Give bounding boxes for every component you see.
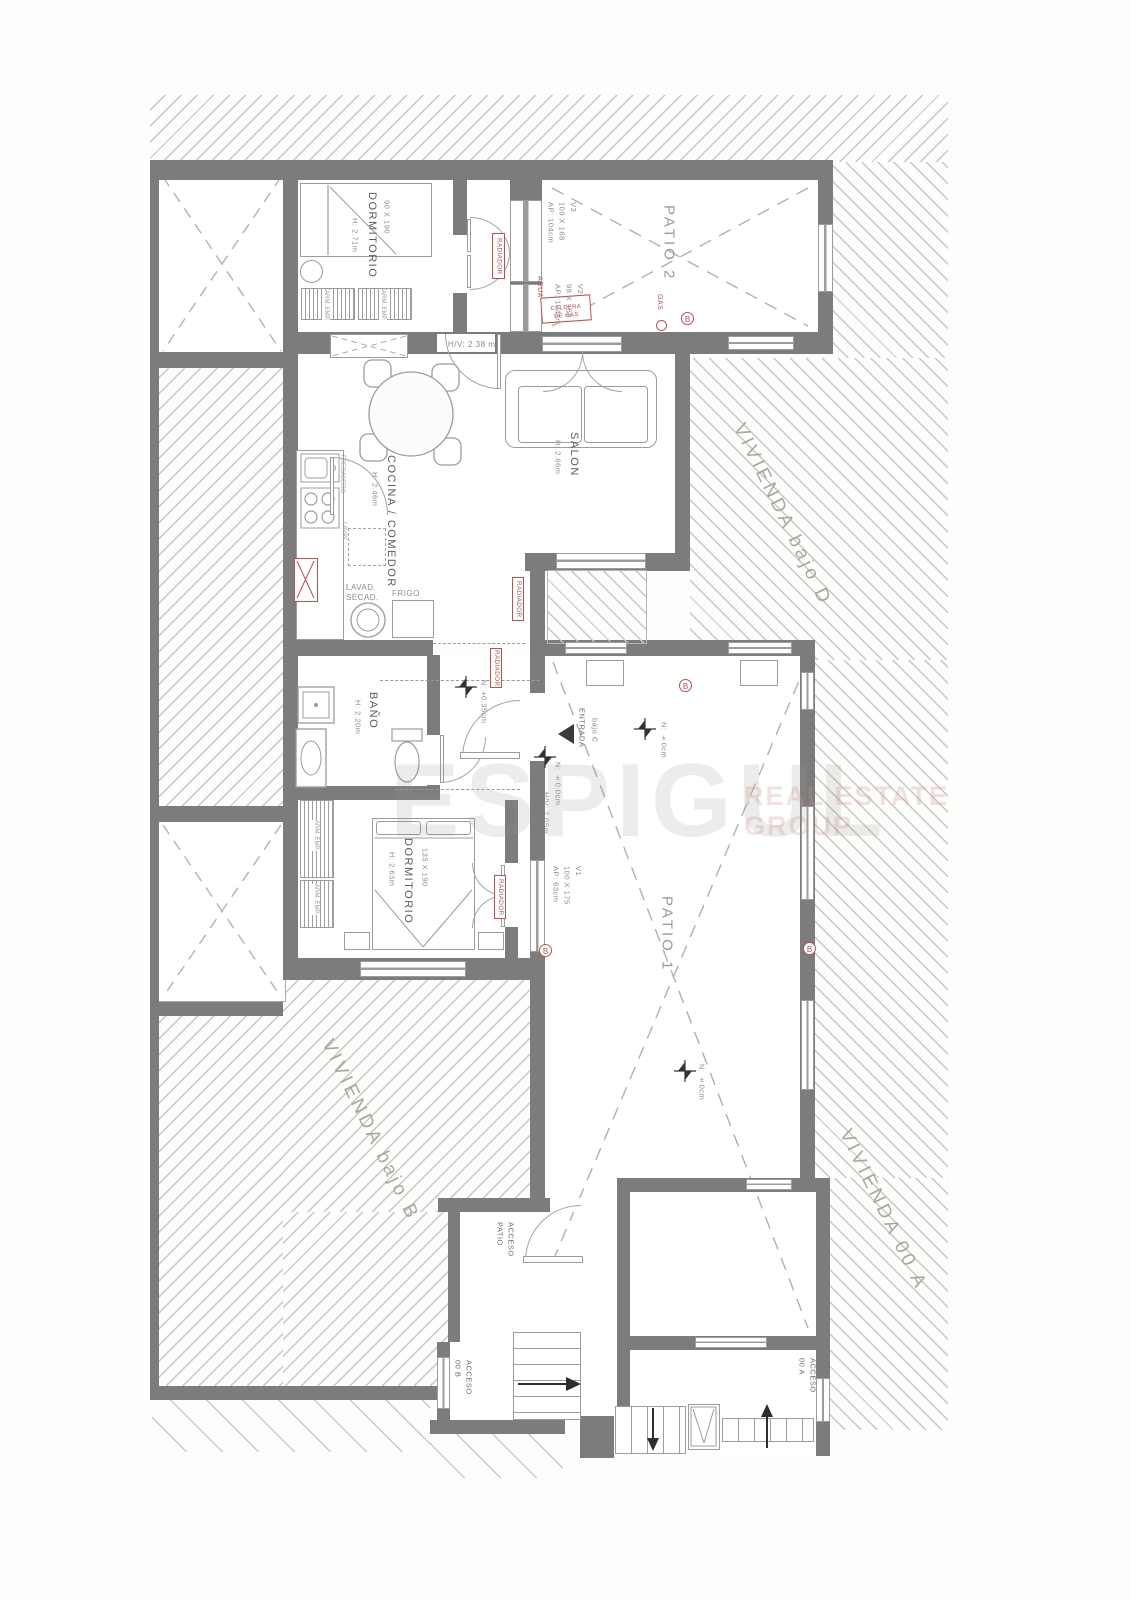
- nightstand: [478, 932, 504, 950]
- wall: [150, 806, 283, 822]
- planter: [586, 660, 624, 686]
- level-cross: [455, 676, 477, 698]
- dining-table-set: [352, 352, 472, 474]
- radiador-label: RADIADOR: [492, 233, 505, 279]
- bajante-marker: B: [539, 944, 552, 957]
- window-patio1-right-3: [801, 1000, 814, 1090]
- wardrobe-label: ARM. EMP.: [322, 290, 330, 321]
- stair-up-line: [766, 1414, 768, 1448]
- bajante-marker: B: [803, 942, 816, 955]
- window-v1-label: V1 100 X 175 AP: 63cm: [550, 866, 584, 905]
- planter: [740, 660, 778, 686]
- hatch-mid-block: [547, 570, 647, 644]
- stair-arrow-line: [518, 1383, 568, 1385]
- wall: [150, 162, 159, 1400]
- wall: [816, 1178, 830, 1378]
- wall: [596, 1430, 612, 1448]
- acceso-00a-label: ACCESO 00 A: [796, 1358, 819, 1393]
- wall: [675, 354, 690, 555]
- window-salon-patio2: [542, 336, 622, 352]
- washer-unit: [348, 600, 388, 640]
- wall: [800, 656, 815, 1180]
- lavadora-label: LAVAD.: [346, 583, 376, 592]
- wall: [150, 1386, 448, 1400]
- staircase-main: [513, 1332, 581, 1420]
- bano-label: BAÑO: [365, 692, 380, 729]
- wall: [530, 560, 545, 644]
- lightwell-a-cross: [158, 172, 286, 356]
- window-patio1-top-left: [565, 642, 627, 654]
- bajante-marker: B: [679, 679, 692, 692]
- wall: [150, 160, 833, 180]
- entrada-unit-label: bajo C: [589, 718, 600, 743]
- stair-arrow-right: [566, 1377, 581, 1391]
- window-v3: [510, 200, 542, 282]
- door-gap-dormitorio2: [505, 863, 518, 927]
- wall: [430, 1420, 565, 1434]
- watermark-tagline: REAL ESTATE GROUP: [744, 782, 949, 841]
- window-salon-low: [556, 553, 646, 569]
- window-patio1-top-right: [728, 642, 792, 654]
- acceso-00b-label: ACCESO 00 B: [452, 1360, 475, 1395]
- radiador-label: RADIADOR: [490, 648, 502, 688]
- radiador-label: RADIADOR: [512, 577, 524, 621]
- bano-height: H: 2.20m: [352, 700, 363, 734]
- frigo-label: FRIGO: [392, 589, 420, 598]
- salon-height: H: 2.66m: [552, 440, 563, 474]
- stair-down-line: [652, 1408, 654, 1440]
- salon-label: SALON: [566, 432, 581, 477]
- pantry-dashed: [348, 528, 386, 566]
- door-leaf: [330, 457, 334, 515]
- gas-valve: [656, 320, 667, 331]
- shower: [297, 686, 335, 724]
- floor-plan: ARM. EMP. ARM. EMP. FREGADERO LAVAV. LAV…: [0, 0, 1131, 1600]
- window-patio1-right-1: [801, 672, 814, 710]
- door-leaf: [467, 255, 471, 288]
- nightstand: [344, 932, 370, 950]
- wall: [816, 1420, 830, 1456]
- wall: [150, 1002, 283, 1016]
- sofa-cushion: [584, 386, 648, 443]
- door-leaf: [523, 1256, 583, 1263]
- patio2-label: PATIO 2: [658, 205, 678, 281]
- hatch-right-strip: [815, 660, 948, 1178]
- wardrobe-label: ARM. EMP.: [312, 884, 320, 915]
- dormitorio1-label: DORMITORIO: [364, 192, 379, 278]
- clearance-hall-label: H/V: 2.38 m: [448, 340, 495, 349]
- bajante-marker: B: [681, 312, 694, 325]
- window-lower-room-bottom: [695, 1337, 767, 1348]
- lavavajillas-label: LAVAV.: [340, 522, 348, 541]
- window-patio2-right: [818, 224, 833, 292]
- level-hall: N: +0.35cm: [478, 680, 489, 724]
- door-leaf: [467, 219, 471, 252]
- wall: [438, 1198, 550, 1212]
- acceso-patio-label: ACCESO PATIO: [494, 1222, 517, 1257]
- hatch-vivienda-bajo-b-lower: [283, 1212, 448, 1398]
- caldera-box-kitchen: [294, 558, 318, 602]
- wall: [448, 1212, 460, 1342]
- door-gap-dormitorio1: [453, 235, 467, 293]
- bedside-table-round: [300, 260, 323, 283]
- window-dormitorio2: [360, 961, 466, 977]
- stair-arrow-up: [761, 1404, 773, 1417]
- agua-label: AGUA: [536, 276, 543, 298]
- staircase-up: [722, 1418, 814, 1442]
- level-cross: [674, 1060, 696, 1082]
- hatch-sparse-bottom-left: [152, 1400, 430, 1452]
- bathroom-sink: [295, 728, 327, 788]
- reference-dashed-line: [433, 643, 525, 644]
- fridge: [392, 600, 434, 638]
- wall: [617, 1178, 830, 1192]
- dormitorio1-height: H: 2.71m: [349, 218, 360, 252]
- radiador-label: RADIADOR: [494, 875, 506, 919]
- gas-label: GAS: [656, 294, 663, 310]
- wardrobe-label: ARM. EMP.: [379, 290, 387, 321]
- stair-arrow-down: [647, 1438, 659, 1451]
- window-v1: [530, 860, 545, 952]
- wall: [617, 1192, 630, 1336]
- dormitorio1-size: 90 X 190: [381, 200, 392, 234]
- entrada-arrow: [558, 724, 574, 744]
- hatch-vivienda-bajo-b: [283, 980, 530, 1212]
- level-cross: [634, 718, 656, 740]
- hatch-top-band: [150, 95, 948, 162]
- wall: [617, 1336, 630, 1408]
- patio1-label: PATIO 1: [656, 896, 676, 972]
- cocina-label: COCINA / COMEDOR: [383, 455, 398, 588]
- window-patio2-sill: [728, 336, 794, 350]
- door-leaf: [497, 334, 501, 389]
- level-patio1-bottom: N: ±0cm: [696, 1064, 707, 1100]
- hatch-right-upper: [833, 162, 948, 358]
- hatch-vivienda-bajo-d: [690, 358, 948, 660]
- door-acceso-00b: [437, 1357, 450, 1409]
- window-v2-label: V2 98 X 168 AP: 104cm: [552, 284, 586, 325]
- cocina-height: H: 2.46m: [369, 472, 380, 506]
- wardrobe-label: ARM. EMP.: [312, 820, 320, 851]
- elevator: [688, 1404, 720, 1450]
- wall: [150, 352, 283, 368]
- window-v3-label: V3 109 X 168 AP: 104cm: [545, 202, 579, 243]
- wall: [283, 640, 433, 656]
- lightwell-b-cross: [158, 820, 286, 1002]
- hatch-sparse-bottom-mid: [430, 1434, 563, 1478]
- window-lower-room-top: [746, 1179, 792, 1190]
